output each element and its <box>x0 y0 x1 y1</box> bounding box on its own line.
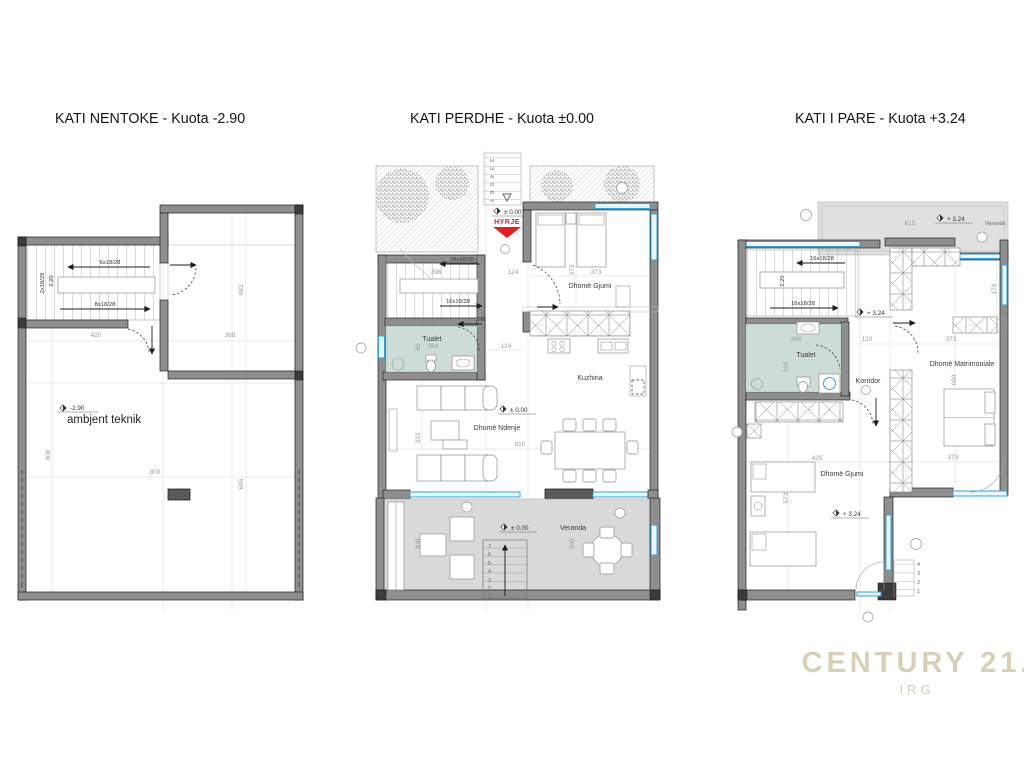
room-label-kitchen: Kuzhina <box>577 375 602 382</box>
svg-text:2: 2 <box>488 586 491 592</box>
plan2-stairs: 16x18/28 16x18/28 296 <box>386 250 482 327</box>
svg-text:615: 615 <box>905 220 916 227</box>
bed <box>751 462 815 492</box>
kitchen-cabinets <box>530 311 630 336</box>
svg-text:+ 3.24: + 3.24 <box>947 216 965 223</box>
svg-text:425: 425 <box>812 455 823 462</box>
room-label-living: Dhomë Ndenje <box>474 425 521 432</box>
wardrobe <box>912 248 960 266</box>
window <box>886 515 891 570</box>
sofa <box>417 455 441 481</box>
plan3-stairs: 16x18/28 16x18/28 2.20 <box>746 250 858 316</box>
stair-run-label: 8x18/28 <box>95 302 116 308</box>
plan3-title: KATI I PARE - Kuota +3.24 <box>795 111 966 127</box>
svg-text:7: 7 <box>488 544 491 550</box>
window <box>953 254 1005 259</box>
window <box>745 242 860 247</box>
svg-text:1: 1 <box>917 589 920 595</box>
wardrobe <box>890 248 912 310</box>
window <box>595 204 650 209</box>
svg-text:333: 333 <box>415 432 422 443</box>
room-label-veranda: Veranda <box>560 525 586 532</box>
chair <box>603 419 616 431</box>
svg-text:+ 3.24: + 3.24 <box>843 511 861 518</box>
tv-table <box>443 440 467 449</box>
svg-text:800: 800 <box>150 469 161 476</box>
svg-text:± 0.00: ± 0.00 <box>504 209 522 216</box>
bed <box>577 213 606 267</box>
svg-text:5: 5 <box>488 561 491 567</box>
svg-text:808: 808 <box>45 449 52 460</box>
svg-text:573: 573 <box>783 492 790 503</box>
svg-text:124: 124 <box>501 343 512 350</box>
floorplan-drawing: KATI NENTOKE - Kuota -2.90 KATI PERDHE -… <box>0 0 1024 768</box>
chair <box>583 419 596 431</box>
chair <box>600 527 614 538</box>
stair-flight-label: 2x18/28 <box>40 273 46 294</box>
closet <box>755 402 843 422</box>
wall-tag <box>356 343 366 353</box>
veranda-stairs: 7 6 5 4 3 2 1 <box>483 540 527 600</box>
room-label-bedroom: Dhomë Gjumi <box>821 471 864 478</box>
tree-icon <box>541 170 573 202</box>
wc <box>427 360 436 372</box>
window-tag <box>615 508 625 518</box>
chair <box>600 563 614 574</box>
wc <box>799 382 808 393</box>
window-sliding <box>953 491 1007 496</box>
sofa <box>417 386 441 410</box>
room-label-master: Dhomë Matrimoniale <box>930 361 995 368</box>
svg-text:284: 284 <box>428 343 439 350</box>
room-label-technical: ambjent teknik <box>67 414 141 426</box>
svg-text:120: 120 <box>862 336 873 343</box>
brand-sub: IRG <box>899 682 934 697</box>
window-sliding <box>593 492 648 497</box>
floorplan-sheet: KATI NENTOKE - Kuota -2.90 KATI PERDHE -… <box>0 0 1024 768</box>
stair-run-label: 6x18/28 <box>100 260 121 266</box>
plan1-stairs: 6x18/28 8x18/28 2x18/28 2.20 <box>26 245 160 320</box>
door-tag <box>863 612 873 622</box>
dresser <box>953 317 997 333</box>
sofa <box>441 455 465 481</box>
veranda-ground: 7 6 5 4 3 2 1 ± 0.00 Veranda 300 300 <box>376 498 660 600</box>
svg-text:368: 368 <box>225 332 236 339</box>
pillow <box>985 424 995 445</box>
stove <box>548 339 570 353</box>
door-tag <box>501 245 510 254</box>
chair <box>583 543 594 557</box>
planting-box-left <box>375 166 478 252</box>
window <box>651 214 657 260</box>
svg-text:± 0.00: ± 0.00 <box>510 407 528 414</box>
coffee-table <box>431 421 459 440</box>
svg-text:2: 2 <box>917 580 920 586</box>
window <box>651 525 657 555</box>
armchair <box>450 517 474 541</box>
dining-table <box>555 432 625 469</box>
nightstand <box>566 213 576 224</box>
svg-text:16x18/28: 16x18/28 <box>446 299 470 305</box>
sofa-corner <box>483 386 497 410</box>
svg-text:± 0.00: ± 0.00 <box>511 525 529 532</box>
svg-text:3: 3 <box>917 571 920 577</box>
chair <box>583 470 596 482</box>
plan2-title: KATI PERDHE - Kuota ±0.00 <box>410 111 594 127</box>
room-label-bedroom: Dhomë Gjumi <box>569 283 612 290</box>
window <box>379 336 385 358</box>
svg-text:5: 5 <box>488 183 494 186</box>
svg-text:288: 288 <box>791 336 802 343</box>
svg-text:4: 4 <box>488 569 491 575</box>
svg-text:6: 6 <box>488 191 494 194</box>
level-value: -2.90 <box>70 405 85 412</box>
wall-tag <box>732 427 742 437</box>
chair <box>541 441 552 454</box>
toilet-upper: Tualet 220 <box>746 322 841 393</box>
svg-text:4: 4 <box>917 562 920 568</box>
window-tag <box>911 539 922 550</box>
svg-text:373: 373 <box>569 264 576 275</box>
sofa-corner <box>483 455 497 481</box>
washing-machine <box>819 374 840 393</box>
bed <box>536 213 565 267</box>
svg-text:300: 300 <box>569 538 576 549</box>
svg-text:3: 3 <box>488 167 494 170</box>
washbasin <box>452 356 474 370</box>
sink <box>598 339 628 353</box>
svg-text:483: 483 <box>238 284 245 295</box>
chair <box>603 470 616 482</box>
room-label-toilet: Tualet <box>422 336 441 343</box>
door-tag <box>862 386 871 395</box>
round-table <box>591 534 623 566</box>
nightstand <box>751 496 765 516</box>
room-label-toilet: Tualet <box>796 352 815 359</box>
svg-text:4: 4 <box>488 175 494 178</box>
tree-icon <box>375 169 429 223</box>
wardrobe <box>890 370 912 492</box>
svg-text:420: 420 <box>91 332 102 339</box>
room-label-corridor: Korridor <box>856 378 882 385</box>
svg-text:1: 1 <box>488 594 491 600</box>
window-tag <box>801 210 812 221</box>
svg-text:3: 3 <box>488 578 491 584</box>
chair <box>563 419 576 431</box>
svg-text:6: 6 <box>488 552 491 558</box>
window-tag <box>617 183 628 194</box>
svg-text:+ 3.24: + 3.24 <box>867 310 885 317</box>
svg-text:16x18/28: 16x18/28 <box>450 257 474 263</box>
room-label-veranda: Veranda <box>985 221 1006 227</box>
svg-text:296: 296 <box>431 269 442 276</box>
column <box>168 489 190 500</box>
chair <box>621 543 632 557</box>
window-sliding <box>410 492 520 497</box>
stair-height-label: 2.20 <box>49 275 55 286</box>
svg-text:373: 373 <box>946 336 957 343</box>
planting-box-right <box>530 166 654 203</box>
entry-stairs: 2 3 4 5 6 7 <box>484 153 521 205</box>
side-table <box>420 534 446 556</box>
svg-text:220: 220 <box>783 361 790 372</box>
pillow <box>985 392 995 413</box>
svg-text:373: 373 <box>948 454 959 461</box>
svg-text:16x18/28: 16x18/28 <box>810 256 834 262</box>
svg-text:810: 810 <box>515 441 526 448</box>
chair <box>627 441 638 454</box>
bed <box>750 532 816 566</box>
armchair <box>450 555 474 579</box>
svg-text:2: 2 <box>488 159 494 162</box>
hyrje-label: HYRJE <box>494 219 520 226</box>
window <box>1002 265 1007 305</box>
sofa <box>441 386 465 410</box>
svg-text:16x18/28: 16x18/28 <box>791 301 815 307</box>
window <box>857 592 881 596</box>
brand-name: CENTURY 21. <box>802 647 1024 679</box>
svg-text:645: 645 <box>238 478 245 489</box>
svg-text:124: 124 <box>508 269 519 276</box>
svg-text:7: 7 <box>488 199 494 202</box>
tree-icon <box>435 166 469 200</box>
svg-text:300: 300 <box>415 538 422 549</box>
chair <box>563 470 576 482</box>
window-tag <box>977 232 987 242</box>
svg-text:178: 178 <box>991 283 998 294</box>
svg-text:373: 373 <box>591 269 602 276</box>
window-tag <box>462 502 472 512</box>
svg-text:2.20: 2.20 <box>780 275 786 286</box>
svg-text:690: 690 <box>951 374 958 385</box>
plan1-title: KATI NENTOKE - Kuota -2.90 <box>55 111 245 127</box>
svg-text:60: 60 <box>415 343 422 351</box>
